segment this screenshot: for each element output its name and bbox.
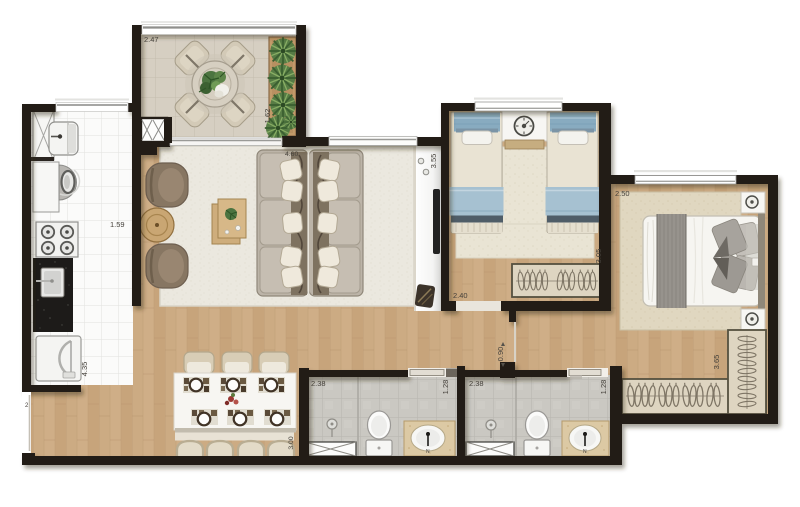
svg-text:3.55: 3.55: [429, 154, 438, 169]
svg-text:2.40: 2.40: [453, 291, 468, 300]
svg-text:2.38: 2.38: [311, 379, 326, 388]
svg-text:1.28: 1.28: [441, 380, 450, 395]
svg-text:2.50: 2.50: [615, 189, 630, 198]
svg-text:N: N: [583, 449, 587, 455]
svg-text:4.35: 4.35: [80, 362, 89, 377]
svg-text:N: N: [426, 449, 430, 455]
svg-text:0.90: 0.90: [496, 347, 505, 362]
svg-text:1.28: 1.28: [599, 380, 608, 395]
svg-text:2.38: 2.38: [469, 379, 484, 388]
svg-text:2.47: 2.47: [144, 35, 159, 44]
svg-text:3.05: 3.05: [594, 249, 603, 264]
svg-text:3.65: 3.65: [712, 355, 721, 370]
svg-text:4.60: 4.60: [285, 151, 298, 158]
svg-text:1.62: 1.62: [263, 109, 272, 124]
svg-text:1.59: 1.59: [110, 220, 125, 229]
svg-text:3.00: 3.00: [288, 436, 295, 449]
